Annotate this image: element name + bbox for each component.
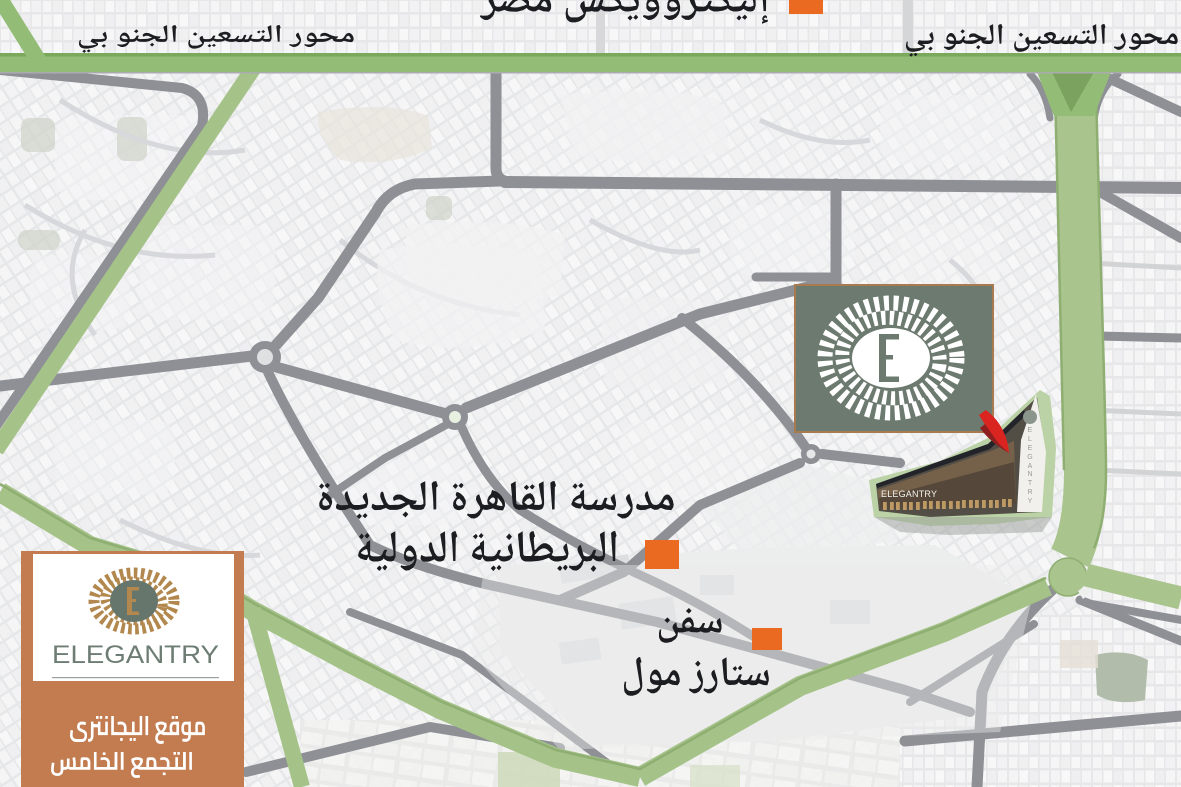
svg-text:G: G — [1027, 454, 1032, 461]
svg-text:R: R — [1027, 489, 1032, 496]
svg-text:ELEGANTRY: ELEGANTRY — [52, 641, 219, 669]
svg-text:E: E — [1028, 445, 1033, 452]
svg-text:N: N — [1027, 471, 1032, 478]
svg-text:L: L — [1028, 436, 1032, 443]
svg-text:Y: Y — [1028, 498, 1033, 505]
svg-text:ELEGANTRY: ELEGANTRY — [881, 489, 937, 499]
svg-text:E: E — [1028, 427, 1033, 434]
svg-text:A: A — [1028, 463, 1033, 470]
svg-text:T: T — [1028, 480, 1033, 487]
